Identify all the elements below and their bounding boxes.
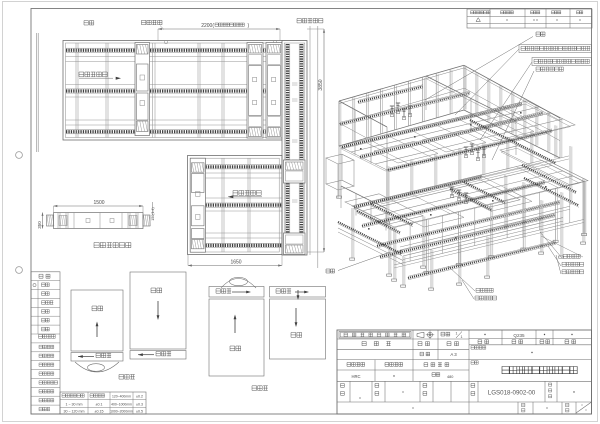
svg-text:1 ~ 30 mm: 1 ~ 30 mm <box>65 402 82 406</box>
svg-text:1650: 1650 <box>230 260 241 266</box>
svg-text:30 ~ 120 mm: 30 ~ 120 mm <box>63 410 84 414</box>
svg-text:±0.1: ±0.1 <box>96 402 103 406</box>
svg-text:LGS018-0902-00: LGS018-0902-00 <box>488 389 536 396</box>
svg-text:±0.5: ±0.5 <box>136 410 143 414</box>
svg-text:±0.3: ±0.3 <box>136 402 143 406</box>
svg-text:±0.2: ±0.2 <box>136 395 143 399</box>
svg-text:150(1:4): 150(1:4) <box>151 207 155 220</box>
svg-text:3850: 3850 <box>318 79 324 90</box>
svg-text:±0.15: ±0.15 <box>95 410 104 414</box>
svg-text:400~1000mm: 400~1000mm <box>111 402 132 406</box>
svg-text:1: 1 <box>456 332 458 336</box>
svg-text:1500: 1500 <box>93 200 104 206</box>
svg-text:120~400mm: 120~400mm <box>112 395 131 399</box>
svg-text:350: 350 <box>37 221 42 229</box>
svg-text:Q235: Q235 <box>513 333 525 338</box>
svg-text:1000~2000mm: 1000~2000mm <box>110 410 133 414</box>
svg-text:2200(: 2200( <box>201 23 214 29</box>
svg-text:1: 1 <box>461 335 463 339</box>
svg-text:480: 480 <box>447 375 453 379</box>
svg-text:A 3: A 3 <box>450 352 457 357</box>
svg-text:HRC: HRC <box>351 374 360 379</box>
